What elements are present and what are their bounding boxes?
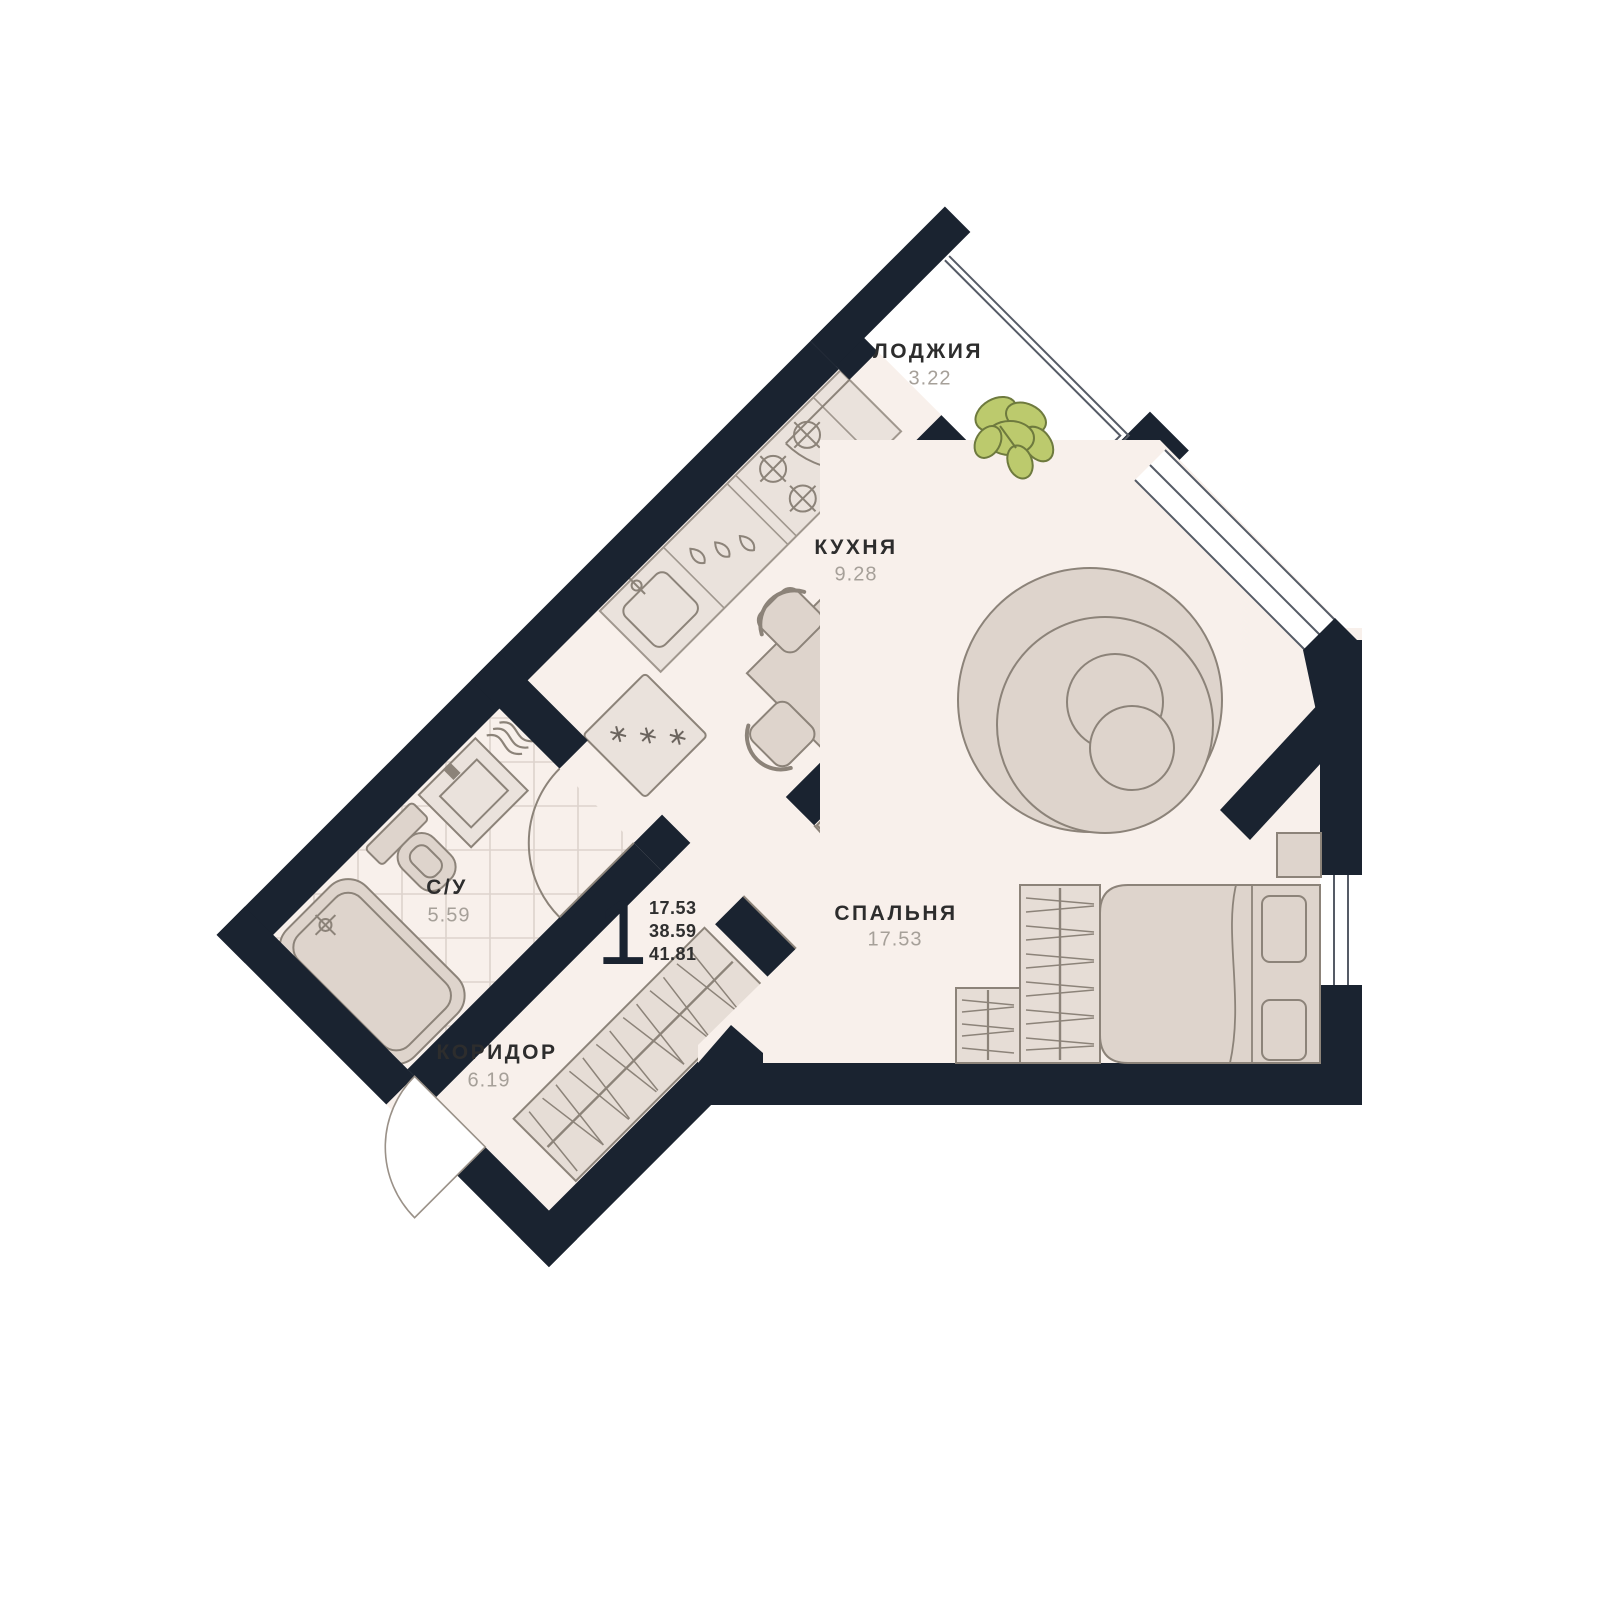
unit-area-line: 17.53 — [649, 897, 697, 920]
room-area-corridor: 6.19 — [468, 1070, 511, 1093]
room-label-loggia: ЛОДЖИЯ — [873, 340, 983, 364]
bedroom-wardrobe-icon — [1020, 885, 1100, 1063]
bedroom-window-side — [1320, 875, 1362, 985]
nightstand-icon — [1277, 833, 1321, 877]
room-area-loggia: 3.22 — [909, 368, 952, 391]
floor-plan-svg — [0, 0, 1600, 1600]
unit-area-line: 38.59 — [649, 920, 697, 943]
lounge-chair-icon — [958, 568, 1222, 833]
room-label-kitchen: КУХНЯ — [814, 536, 897, 560]
floor-plan: ЛОДЖИЯ 3.22 КУХНЯ 9.28 С/У 5.59 КОРИДОР … — [0, 0, 1600, 1600]
unit-area-summary: 17.53 38.59 41.81 — [649, 897, 697, 966]
room-label-corridor: КОРИДОР — [436, 1041, 557, 1065]
unit-number: 1 — [596, 887, 647, 979]
room-area-bathroom: 5.59 — [428, 905, 471, 928]
room-label-bathroom: С/У — [426, 876, 468, 900]
room-area-kitchen: 9.28 — [835, 564, 878, 587]
rack-icon — [956, 988, 1020, 1063]
room-area-bedroom: 17.53 — [867, 929, 922, 952]
room-label-bedroom: СПАЛЬНЯ — [834, 902, 957, 926]
unit-area-line: 41.81 — [649, 943, 697, 966]
bed-icon — [1100, 885, 1320, 1063]
